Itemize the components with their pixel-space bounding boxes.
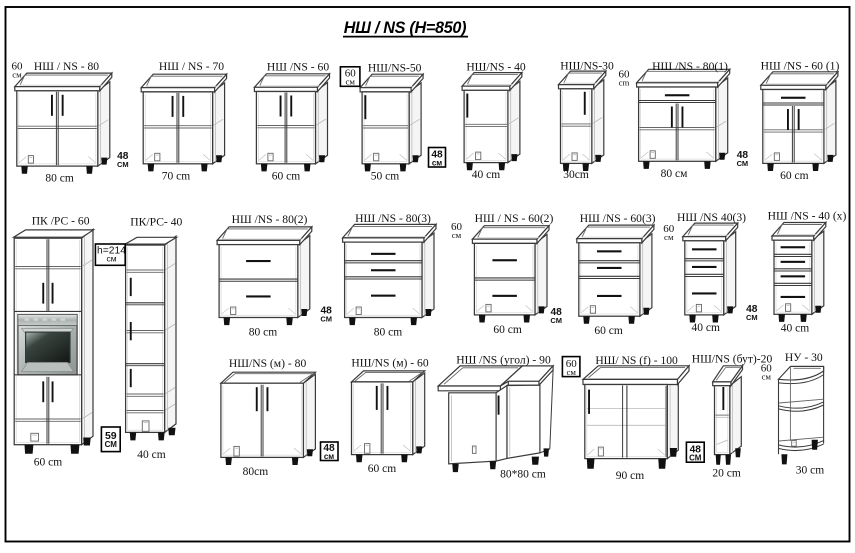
svg-text:60 cm: 60 cm [272, 170, 300, 182]
svg-text:80cm: 80cm [243, 466, 269, 478]
svg-text:НШ / NS (H=850): НШ / NS (H=850) [344, 19, 466, 37]
svg-text:cm: cm [619, 78, 630, 88]
svg-text:ПК/РС- 40: ПК/РС- 40 [130, 216, 182, 229]
svg-text:НШ/NS (м) - 80: НШ/NS (м) - 80 [229, 357, 307, 370]
svg-text:СМ: СМ [320, 315, 332, 324]
svg-text:НШ /NS - 40 (х): НШ /NS - 40 (х) [768, 210, 847, 223]
svg-text:80*80 cm: 80*80 cm [500, 469, 546, 481]
svg-text:см: см [761, 372, 771, 382]
svg-text:см: см [566, 367, 576, 377]
svg-text:НШ/ NS (f) - 100: НШ/ NS (f) - 100 [595, 354, 678, 367]
svg-text:НШ / NS - 70: НШ / NS - 70 [159, 60, 224, 73]
svg-text:НШ /NS (угол) - 90: НШ /NS (угол) - 90 [456, 354, 551, 367]
svg-text:НШ /NS - 60(3): НШ /NS - 60(3) [580, 212, 656, 225]
svg-text:см: см [324, 452, 334, 461]
svg-text:НШ /NS - 80(1): НШ /NS - 80(1) [652, 60, 728, 73]
svg-text:НШ/NS-30: НШ/NS-30 [560, 60, 614, 73]
svg-text:НУ - 30: НУ - 30 [785, 351, 823, 364]
svg-text:НШ /NS - 80(3): НШ /NS - 80(3) [355, 212, 431, 225]
svg-text:НШ / NS - 60(2): НШ / NS - 60(2) [475, 212, 554, 225]
svg-text:40 cm: 40 cm [137, 449, 165, 461]
svg-text:40 cm: 40 cm [472, 169, 500, 181]
svg-text:см: см [106, 254, 116, 264]
svg-text:60 cm: 60 cm [780, 170, 808, 182]
svg-text:60 cm: 60 cm [34, 457, 62, 469]
svg-text:СМ: СМ [689, 454, 702, 463]
svg-text:СМ: СМ [105, 440, 118, 449]
svg-text:НШ /NS 40(3): НШ /NS 40(3) [677, 211, 746, 224]
svg-text:80 см: 80 см [661, 168, 688, 180]
svg-text:НШ /NS - 60: НШ /NS - 60 [267, 61, 329, 74]
svg-text:НШ /NS - 80(2): НШ /NS - 80(2) [232, 213, 308, 226]
svg-text:НШ/NS - 40: НШ/NS - 40 [466, 61, 526, 74]
svg-text:см: см [12, 70, 22, 80]
svg-text:20 cm: 20 cm [712, 468, 740, 480]
svg-text:80 cm: 80 cm [249, 327, 277, 339]
svg-text:80 cm: 80 cm [374, 327, 402, 339]
svg-text:60 cm: 60 cm [594, 325, 622, 337]
svg-text:НШ/NS-50: НШ/NS-50 [368, 62, 422, 75]
svg-text:СМ: СМ [117, 160, 129, 169]
svg-text:80 cm: 80 cm [45, 173, 73, 185]
svg-text:30 cm: 30 cm [796, 465, 824, 477]
svg-text:30cm: 30cm [563, 169, 589, 181]
svg-text:СМ: СМ [737, 159, 749, 168]
svg-text:СМ: СМ [550, 316, 562, 325]
svg-text:60 cm: 60 cm [368, 463, 396, 475]
svg-text:см: см [452, 230, 462, 240]
svg-text:см: см [432, 159, 442, 168]
svg-text:90 cm: 90 cm [616, 470, 644, 482]
svg-text:40 cm: 40 cm [691, 322, 719, 334]
svg-text:НШ / NS - 80: НШ / NS - 80 [34, 60, 99, 73]
svg-text:60 cm: 60 cm [493, 324, 521, 336]
svg-text:70 cm: 70 cm [162, 170, 190, 182]
svg-text:НШ/NS (м) - 60: НШ/NS (м) - 60 [351, 357, 429, 370]
svg-text:ПК /РС - 60: ПК /РС - 60 [32, 215, 90, 228]
svg-text:см: см [345, 77, 355, 87]
svg-text:50 cm: 50 cm [371, 170, 399, 182]
svg-text:см: см [664, 232, 674, 242]
svg-text:НШ /NS - 60 (1): НШ /NS - 60 (1) [761, 60, 840, 73]
svg-text:СМ: СМ [746, 313, 758, 322]
svg-text:40 cm: 40 cm [781, 322, 809, 334]
